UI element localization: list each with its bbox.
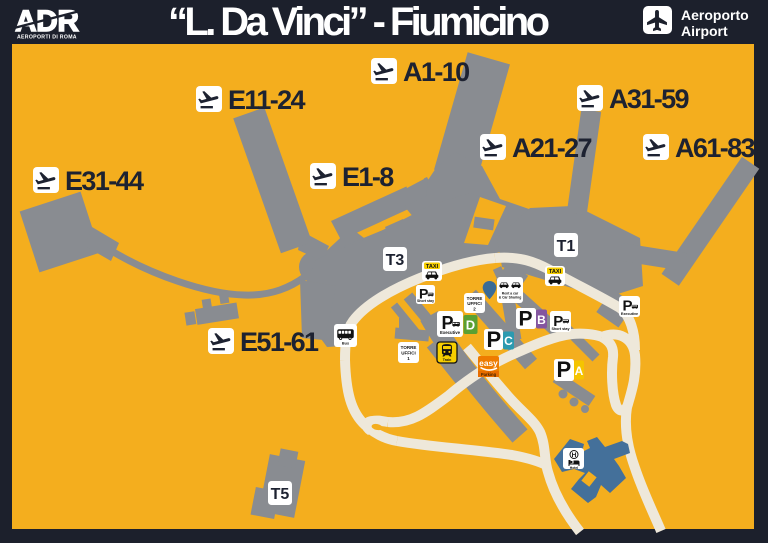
svg-text:P: P bbox=[487, 327, 502, 352]
svg-text:Executive: Executive bbox=[621, 312, 638, 316]
svg-text:T5: T5 bbox=[271, 486, 290, 503]
svg-text:P: P bbox=[557, 357, 572, 382]
svg-text:AEROPORTI DI ROMA: AEROPORTI DI ROMA bbox=[17, 35, 77, 41]
svg-text:C: C bbox=[504, 334, 513, 348]
svg-text:A: A bbox=[575, 364, 584, 378]
svg-text:Short stay: Short stay bbox=[417, 299, 434, 303]
svg-text:H: H bbox=[572, 452, 577, 459]
svg-text:Hotel: Hotel bbox=[570, 466, 579, 470]
svg-text:TAXI: TAXI bbox=[549, 269, 562, 275]
svg-text:A21-27: A21-27 bbox=[512, 133, 592, 163]
svg-text:E31-44: E31-44 bbox=[65, 166, 144, 196]
svg-text:“L. Da Vinci” - Fiumicino: “L. Da Vinci” - Fiumicino bbox=[168, 0, 550, 44]
svg-text:T1: T1 bbox=[557, 238, 576, 255]
svg-text:Executive: Executive bbox=[440, 330, 461, 335]
svg-text:TORRE: TORRE bbox=[401, 345, 417, 350]
svg-text:E51-61: E51-61 bbox=[240, 327, 319, 357]
svg-text:UFFICI: UFFICI bbox=[401, 351, 416, 356]
svg-text:Airport: Airport bbox=[681, 23, 728, 39]
svg-text:Parking: Parking bbox=[481, 372, 497, 377]
svg-text:P: P bbox=[519, 308, 533, 331]
svg-text:TAXI: TAXI bbox=[426, 264, 439, 270]
svg-text:ADR: ADR bbox=[15, 5, 79, 38]
svg-text:Aeroporto: Aeroporto bbox=[681, 7, 749, 23]
svg-text:A31-59: A31-59 bbox=[609, 84, 690, 114]
svg-text:T3: T3 bbox=[386, 252, 405, 269]
svg-text:A1-10: A1-10 bbox=[403, 57, 469, 87]
svg-text:Short stay: Short stay bbox=[551, 327, 570, 331]
svg-text:B: B bbox=[537, 313, 546, 327]
svg-text:easy: easy bbox=[479, 358, 498, 368]
svg-text:& Car Sharing: & Car Sharing bbox=[499, 296, 522, 300]
svg-text:Train: Train bbox=[443, 358, 452, 362]
svg-text:A61-83: A61-83 bbox=[675, 133, 756, 163]
svg-text:E11-24: E11-24 bbox=[228, 85, 306, 115]
svg-text:Bus: Bus bbox=[342, 342, 349, 346]
svg-text:D: D bbox=[466, 318, 475, 333]
svg-text:E1-8: E1-8 bbox=[342, 162, 394, 192]
